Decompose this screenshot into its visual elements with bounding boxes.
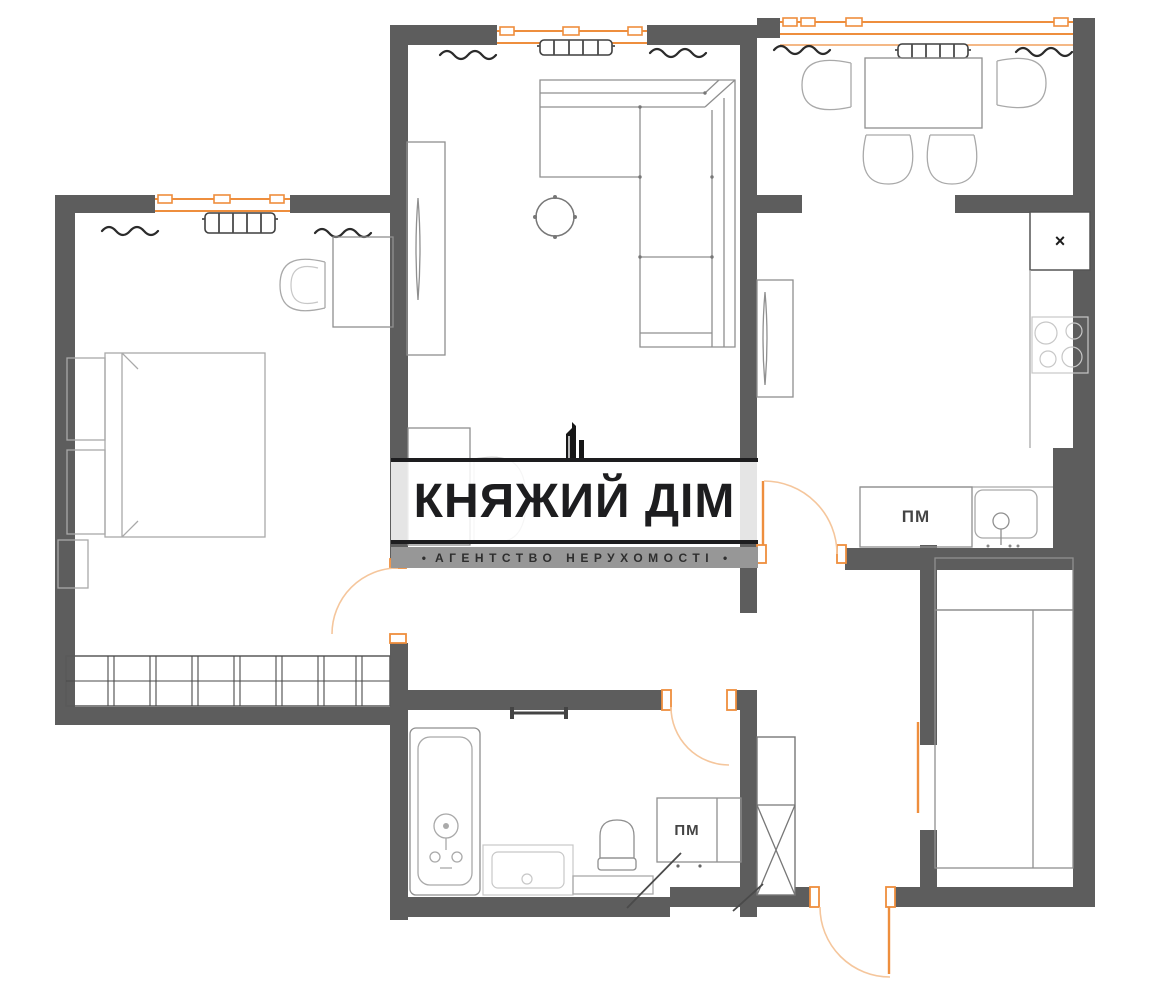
subtitle-left-dot: • xyxy=(422,551,426,565)
hall-cabinet xyxy=(757,737,795,895)
subtitle-right-dot: • xyxy=(723,551,727,565)
door-bathroom xyxy=(662,690,736,765)
agency-watermark: КНЯЖИЙ ДІМ • АГЕНТСТВО НЕРУХОМОСТІ • xyxy=(391,418,758,568)
kitchen-counter xyxy=(860,270,1053,487)
kitchen-tv xyxy=(757,280,793,397)
tv-stand-livingroom xyxy=(407,142,445,355)
bed-bedroom1 xyxy=(105,353,265,537)
dining-table xyxy=(865,58,982,128)
chair-bedroom1 xyxy=(280,259,325,310)
washer-bathroom xyxy=(657,798,741,868)
kitchen-sink xyxy=(975,490,1037,548)
logo-icon-row xyxy=(391,418,758,458)
curtain-icons xyxy=(102,46,1072,237)
vent-shaft xyxy=(1030,212,1090,270)
logo-title-box: КНЯЖИЙ ДІМ xyxy=(391,458,758,544)
window-bedroom1-icon xyxy=(155,195,290,211)
bathroom-sink xyxy=(483,845,573,895)
bed-bedroom2 xyxy=(935,558,1073,868)
window-dining-icon xyxy=(780,18,1073,45)
dining-chairs xyxy=(802,58,1046,184)
door-entrance xyxy=(810,887,895,977)
toilet xyxy=(573,820,653,894)
washer-kitchen xyxy=(860,487,972,547)
coffee-table xyxy=(533,195,577,239)
agency-subtitle: АГЕНТСТВО НЕРУХОМОСТІ xyxy=(435,551,714,565)
desk-bedroom1 xyxy=(333,237,393,327)
floor-plan-canvas: ПМ ПМ × КНЯЖИЙ ДІМ • АГЕНТСТВО НЕРУХОМОС… xyxy=(0,0,1150,988)
corner-sofa xyxy=(540,80,735,347)
wardrobe-bedroom1 xyxy=(66,656,390,706)
logo-subtitle-band: • АГЕНТСТВО НЕРУХОМОСТІ • xyxy=(391,547,758,568)
building-skyline-icon xyxy=(558,420,592,458)
door-kitchen xyxy=(747,481,847,563)
agency-title: КНЯЖИЙ ДІМ xyxy=(414,474,736,529)
door-bedroom1 xyxy=(332,559,406,643)
bathtub xyxy=(410,728,480,895)
